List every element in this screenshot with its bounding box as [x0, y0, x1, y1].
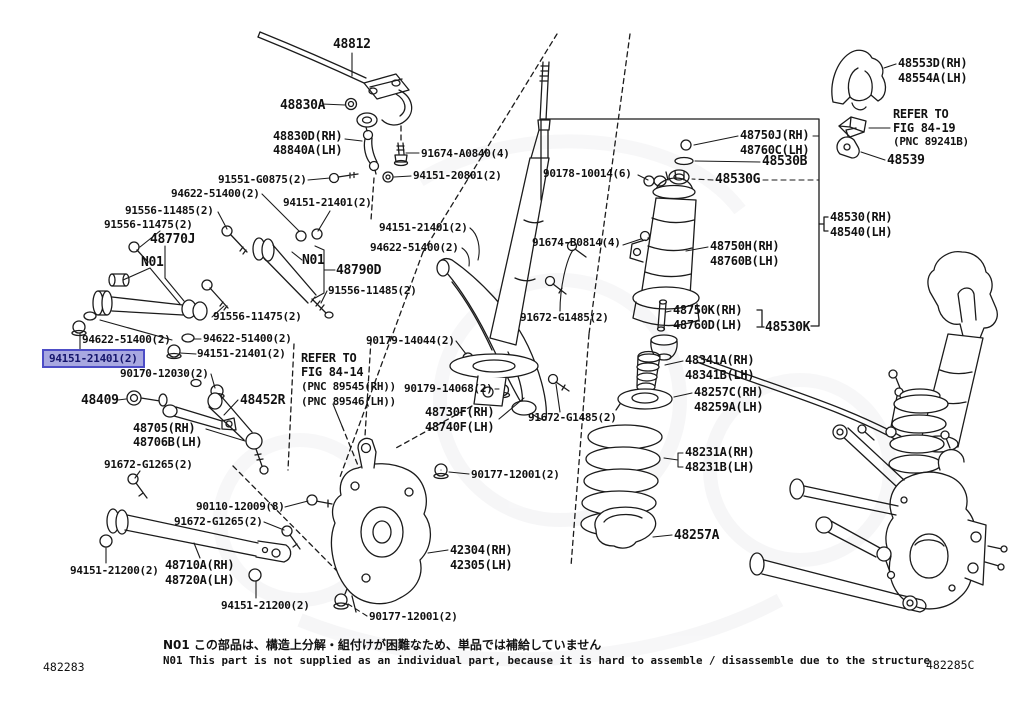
part-label[interactable]: 42304(RH): [450, 544, 512, 556]
part-label[interactable]: 94622-51400(2): [171, 188, 260, 199]
part-label[interactable]: REFER TO: [893, 108, 948, 120]
stabilizer-link: [364, 127, 379, 174]
part-label[interactable]: 90179-14044(2): [366, 335, 455, 346]
part-label[interactable]: 48830D(RH): [273, 130, 342, 142]
part-label[interactable]: 90170-12030(2): [120, 368, 209, 379]
figure-code-left: 482283: [43, 662, 85, 674]
part-label[interactable]: 90178-10014(6): [543, 168, 632, 179]
part-label[interactable]: 48750J(RH): [740, 129, 809, 141]
part-label[interactable]: 48770J: [150, 233, 195, 246]
part-label[interactable]: 48257A: [674, 529, 719, 542]
bracket-48553: [832, 50, 886, 158]
part-label[interactable]: 94151-21200(2): [70, 565, 159, 576]
part-label[interactable]: 91672-G1265(2): [104, 459, 193, 470]
part-label[interactable]: 48750K(RH): [673, 304, 742, 316]
part-label[interactable]: 48720A(LH): [165, 574, 234, 586]
knuckle: [307, 438, 448, 612]
part-label[interactable]: 48840A(LH): [273, 144, 342, 156]
part-label[interactable]: 48409: [81, 394, 119, 407]
part-label[interactable]: 48231A(RH): [685, 446, 754, 458]
diagram-line-art: [0, 0, 1024, 707]
spring-lower-seat: [595, 507, 656, 548]
part-label[interactable]: 48341A(RH): [685, 354, 754, 366]
part-label[interactable]: 91672-G1485(2): [528, 412, 617, 423]
part-label[interactable]: 48259A(LH): [694, 401, 763, 413]
part-label[interactable]: 91672-G1485(2): [520, 312, 609, 323]
part-label[interactable]: 48530K: [765, 321, 810, 334]
part-label[interactable]: REFER TO: [301, 352, 356, 364]
note-japanese: N01 この部品は、構造上分解・組付けが困難なため、単品では補給していません: [163, 639, 601, 651]
part-label[interactable]: 48257C(RH): [694, 386, 763, 398]
part-label[interactable]: 91556-11485(2): [328, 285, 417, 296]
part-label[interactable]: 94151-20801(2): [413, 170, 502, 181]
part-label[interactable]: 94151-21200(2): [221, 600, 310, 611]
part-label[interactable]: 94151-21401(2): [283, 197, 372, 208]
part-label[interactable]: 94622-51400(2): [370, 242, 459, 253]
part-label[interactable]: 94622-51400(2): [82, 334, 171, 345]
part-label[interactable]: 48750H(RH): [710, 240, 779, 252]
part-label[interactable]: 48554A(LH): [898, 72, 967, 84]
part-label[interactable]: 48706B(LH): [133, 436, 202, 448]
part-label[interactable]: 48530G: [715, 173, 760, 186]
part-label[interactable]: 48812: [333, 38, 371, 51]
upper-arm-left: [72, 274, 207, 336]
part-label[interactable]: 48740F(LH): [425, 421, 494, 433]
part-label[interactable]: 48539: [887, 154, 925, 167]
part-label[interactable]: (PNC 89241B): [893, 136, 969, 147]
part-label[interactable]: N01: [141, 256, 164, 269]
part-label[interactable]: 94622-51400(2): [203, 333, 292, 344]
part-label[interactable]: 91672-G1265(2): [174, 516, 263, 527]
parts-diagram-page: 4881248830A48830D(RH)48840A(LH)91674-A08…: [0, 0, 1024, 707]
part-label[interactable]: 48705(RH): [133, 422, 195, 434]
part-label[interactable]: (PNC 89545(RH)): [301, 381, 396, 392]
part-label[interactable]: 94151-21401(2): [197, 348, 286, 359]
part-label[interactable]: 91674-A0840(4): [421, 148, 510, 159]
part-label[interactable]: 48760D(LH): [673, 319, 742, 331]
part-label[interactable]: (PNC 89546(LH)): [301, 396, 396, 407]
part-label[interactable]: N01: [302, 254, 325, 267]
part-label[interactable]: 48553D(RH): [898, 57, 967, 69]
part-label[interactable]: 91556-11475(2): [104, 219, 193, 230]
part-label[interactable]: 48231B(LH): [685, 461, 754, 473]
part-label[interactable]: 48341B(LH): [685, 369, 754, 381]
part-label[interactable]: 48530(RH): [830, 211, 892, 223]
part-label[interactable]: 91556-11475(2): [213, 311, 302, 322]
part-label[interactable]: 94151-21401(2): [379, 222, 468, 233]
part-label[interactable]: 48540(LH): [830, 226, 892, 238]
part-label[interactable]: 90177-12001(2): [369, 611, 458, 622]
part-label[interactable]: 90177-12001(2): [471, 469, 560, 480]
part-label[interactable]: 48710A(RH): [165, 559, 234, 571]
part-label[interactable]: 48830A: [280, 99, 325, 112]
part-label[interactable]: 91556-11485(2): [125, 205, 214, 216]
part-label[interactable]: 48790D: [336, 264, 381, 277]
note-english: N01 This part is not supplied as an indi…: [163, 656, 930, 667]
part-label[interactable]: 91674-B0814(4): [532, 237, 621, 248]
part-label[interactable]: FIG 84-14: [301, 366, 363, 378]
part-label[interactable]: 91551-G0875(2): [218, 174, 307, 185]
figure-code-right: 482285C: [926, 660, 974, 672]
part-label[interactable]: 42305(LH): [450, 559, 512, 571]
part-label[interactable]: 90179-14068(2): [404, 383, 493, 394]
part-label[interactable]: 48760B(LH): [710, 255, 779, 267]
part-label[interactable]: 48452R: [240, 394, 285, 407]
assembled-suspension: [697, 252, 1007, 612]
part-label[interactable]: 48730F(RH): [425, 406, 494, 418]
part-label[interactable]: 90110-12009(8): [196, 501, 285, 512]
part-label[interactable]: FIG 84-19: [893, 122, 955, 134]
part-label[interactable]: 48530B: [762, 155, 807, 168]
part-label-highlighted[interactable]: 94151-21401(2): [42, 349, 145, 368]
